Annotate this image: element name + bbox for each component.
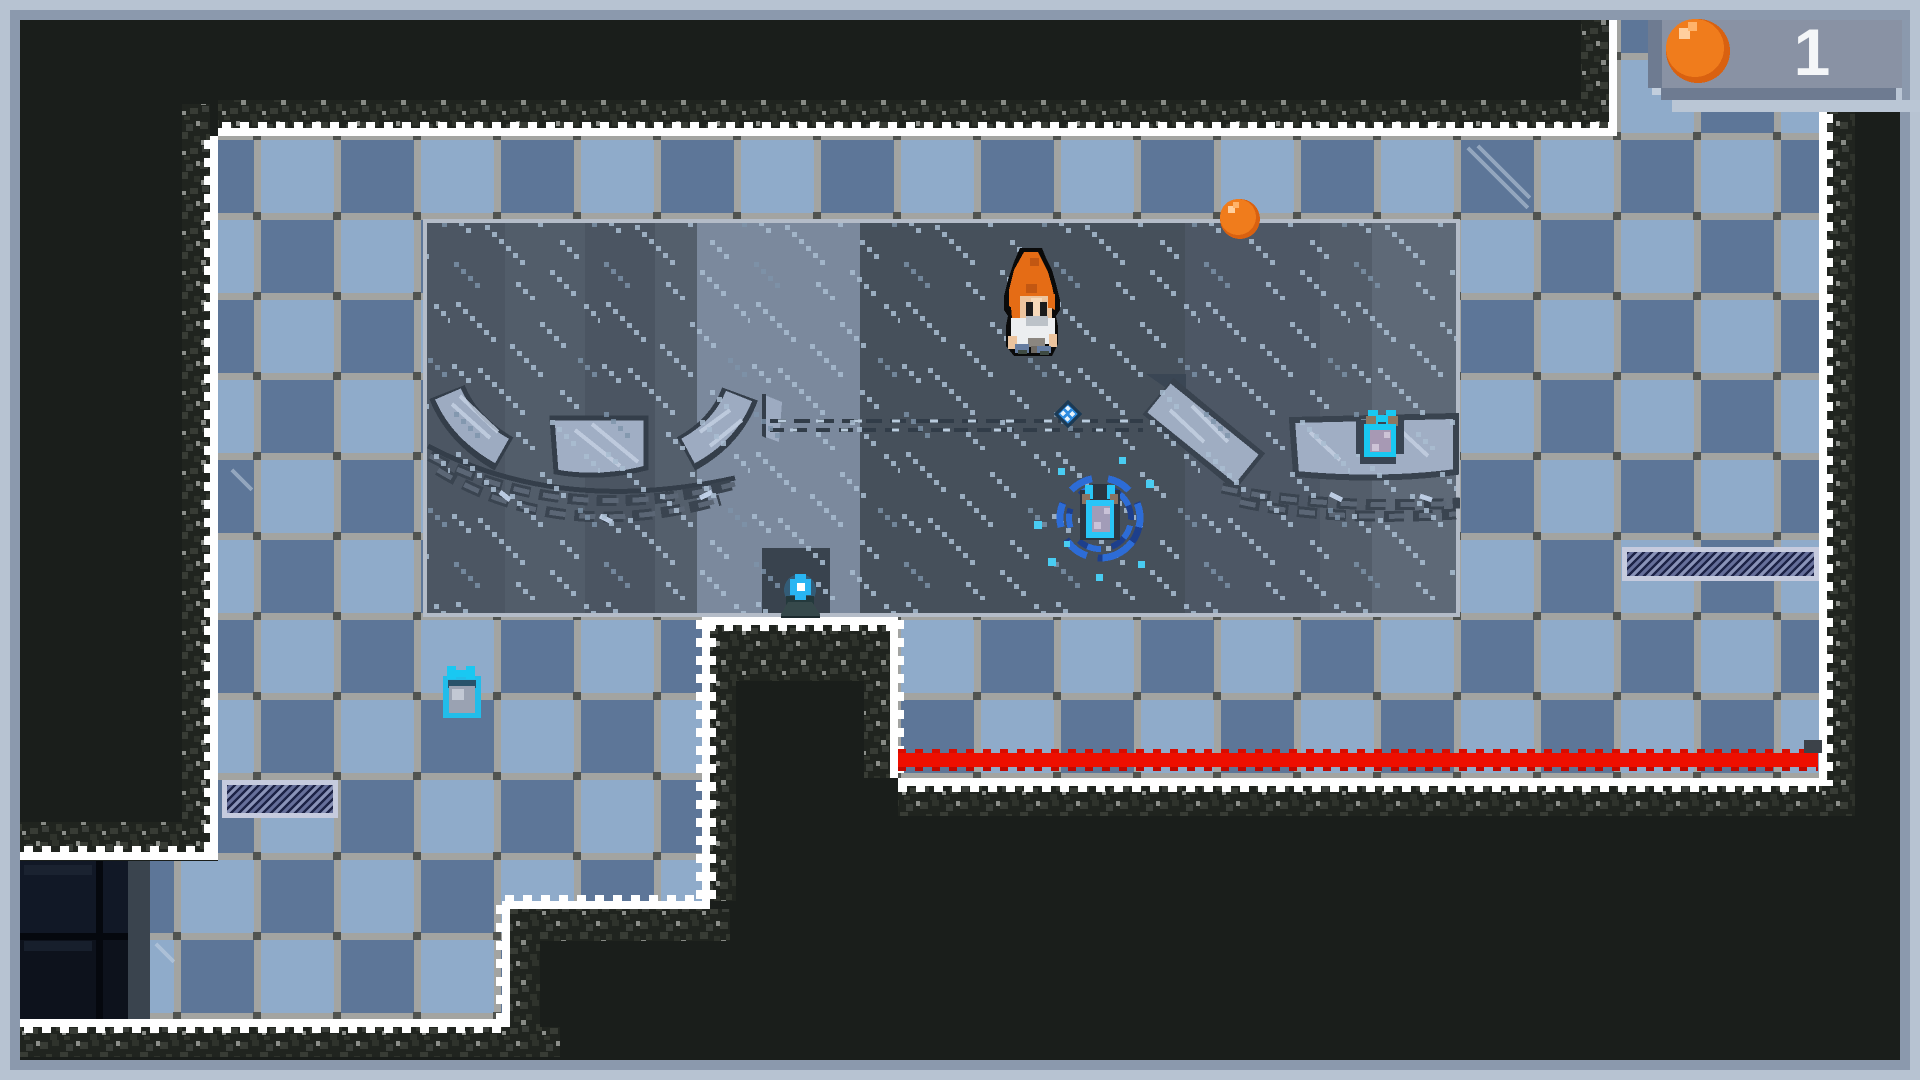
svg-text:1: 1 (1794, 15, 1831, 89)
